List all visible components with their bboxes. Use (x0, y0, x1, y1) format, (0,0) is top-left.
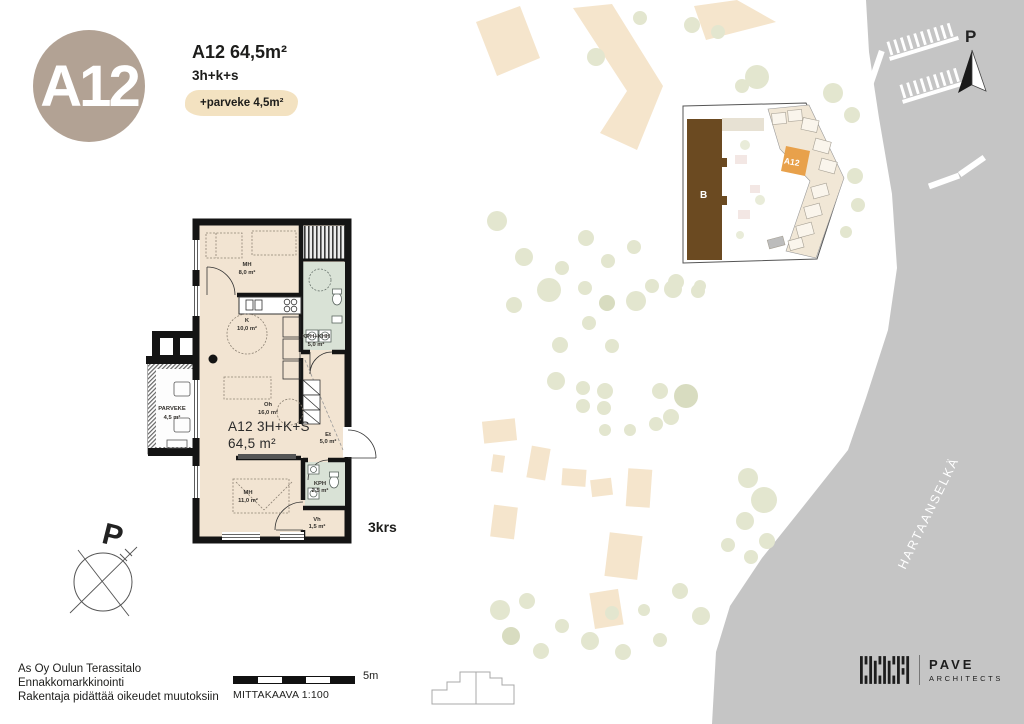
room-label-kph: KPH (314, 481, 326, 487)
room-area-vh: 1,5 m² (309, 523, 326, 530)
project-info: As Oy Oulun Terassitalo Ennakkomarkkinoi… (18, 662, 219, 704)
room-area-kph: 2,5 m² (312, 487, 329, 494)
unit-badge: A12 (33, 30, 145, 142)
disclaimer: Rakentaja pidättää oikeudet muutoksiin (18, 690, 219, 704)
building-section-icon (425, 660, 520, 710)
room-area-oh: 16,0 m² (258, 409, 278, 416)
room-label-oh: Oh (264, 402, 273, 408)
logo-divider (919, 655, 920, 685)
room-area-mh-top: 8,0 m² (239, 269, 256, 276)
room-area-et: 5,0 m² (320, 438, 337, 445)
logo-subtitle: ARCHITECTS (929, 674, 1003, 683)
room-label-vh: Vh (313, 517, 321, 523)
page-title: A12 64,5m² (192, 42, 287, 63)
floor-level-label: 3krs (368, 519, 397, 535)
room-area-mh-bottom: 11,0 m² (238, 497, 258, 504)
staircase (301, 226, 345, 260)
room-label-et: Et (325, 432, 331, 438)
room-area-kitchen: 10,0 m² (237, 325, 257, 332)
apartment-id-line2: 64,5 m² (228, 436, 276, 451)
room-area-parveke: 4,5 m² (164, 414, 181, 421)
room-label-mh-bottom: MH (243, 490, 252, 496)
project-name: As Oy Oulun Terassitalo (18, 662, 219, 676)
room-label-parveke: PARVEKE (158, 406, 186, 412)
scale-distance-label: 5m (363, 670, 378, 682)
wardrobes (303, 380, 320, 424)
logo-name: PAVE (929, 657, 1003, 672)
brochure-page: A12 B P HARTAANSELKÄ (0, 0, 1024, 724)
logo-barcode-icon (860, 654, 910, 686)
balcony-badge: +parveke 4,5m² (185, 90, 298, 116)
site-buildings (476, 0, 776, 629)
apartment-id-line1: A12 3H+K+S (228, 419, 310, 434)
architect-logo: PAVE ARCHITECTS (860, 654, 1003, 686)
scale-label: MITTAKAAVA 1:100 (233, 689, 329, 701)
balcony: PARVEKE 4,5 m² (146, 356, 200, 456)
room-label-kph-khh: KPH+KHH (302, 334, 330, 340)
room-area-kph-khh: 5,0 m² (308, 341, 325, 348)
scale-bar (233, 676, 355, 684)
room-label-mh-top: MH (242, 262, 251, 268)
unit-badge-label: A12 (40, 53, 137, 120)
room-count-subtitle: 3h+k+s (192, 68, 239, 83)
compass-icon: P (55, 500, 155, 625)
column (209, 355, 218, 364)
marketing-phase: Ennakkomarkkinointi (18, 676, 219, 690)
locator-plan: A12 B (683, 103, 844, 263)
compass-north-label: P (99, 517, 126, 554)
floor-plan: PARVEKE 4,5 m² (140, 210, 410, 550)
north-label: P (965, 27, 976, 46)
locator-building-label: B (700, 190, 707, 201)
